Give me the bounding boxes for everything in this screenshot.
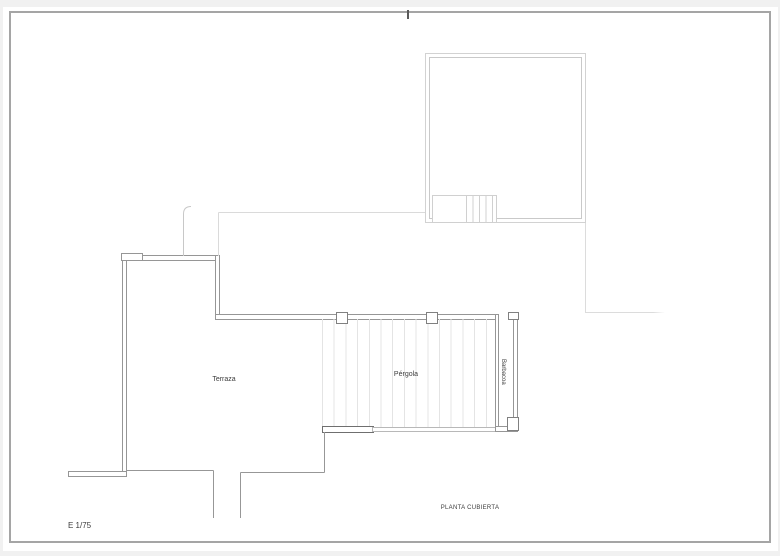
floor-plan-sheet: Terraza Pérgola Barbacoa PLANTA CUBIERTA… xyxy=(0,0,780,556)
terraza-wall-west xyxy=(122,255,127,477)
terraza-wall-southwest xyxy=(68,471,127,477)
barbacoa-wall-east xyxy=(513,314,518,431)
pergola-post-right xyxy=(426,312,438,324)
barbacoa-wall-west xyxy=(495,314,499,431)
barbacoa-notch-top xyxy=(508,312,519,320)
page-margin-top xyxy=(0,0,780,7)
stairs-block xyxy=(432,195,497,223)
terraza-wall-step xyxy=(215,255,220,319)
pergola-label: Pérgola xyxy=(386,371,426,378)
page-margin-left xyxy=(0,0,3,556)
pergola-post-left xyxy=(336,312,348,324)
terraza-corner-cap xyxy=(121,253,143,261)
plan-title: PLANTA CUBIERTA xyxy=(428,505,512,511)
scale-label: E 1/75 xyxy=(68,522,91,530)
pergola-south-edge xyxy=(372,427,498,432)
stair-treads xyxy=(466,196,497,222)
barbacoa-notch-bottom xyxy=(507,417,519,431)
barbacoa-label: Barbacoa xyxy=(500,359,506,395)
terraza-label: Terraza xyxy=(204,376,244,383)
page-margin-bottom xyxy=(0,551,780,556)
pergola-south-wall-segment xyxy=(322,426,374,433)
